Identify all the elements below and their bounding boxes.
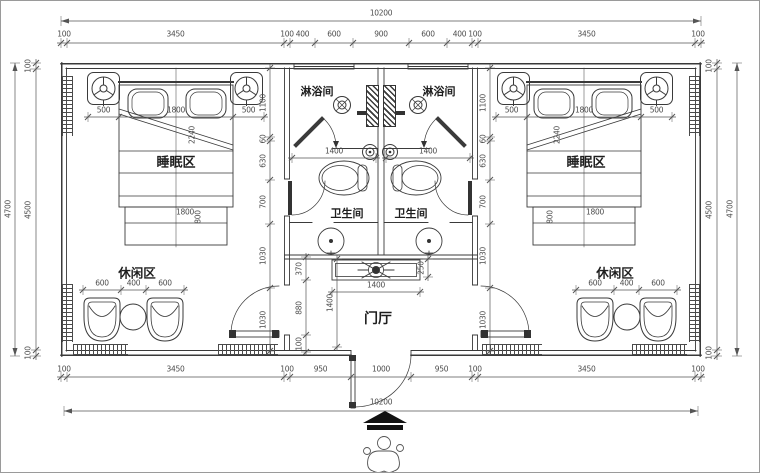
dim-label: 1400: [419, 147, 437, 156]
dim-label: 3450: [578, 30, 596, 39]
room-label-sleep-left: 睡眠区: [156, 152, 195, 171]
dim-label: 400: [127, 279, 140, 288]
dim-label: 3450: [167, 365, 185, 374]
dim-label: 100: [24, 346, 33, 359]
dim-label: 100: [468, 365, 481, 374]
dim-label: 1400: [325, 147, 343, 156]
dim-label: 500: [505, 106, 518, 115]
dim-label: 100: [691, 365, 704, 374]
dim-label: 400: [620, 279, 633, 288]
room-label-shower-left: 淋浴间: [301, 83, 334, 99]
floor-plan-canvas: 睡眠区 睡眠区 淋浴间 淋浴间 卫生间 卫生间 门厅 休闲区 休闲区 10034…: [0, 0, 760, 473]
dim-label: 1800: [167, 106, 185, 115]
dim-label: 1800: [586, 208, 604, 217]
dim-label: 1030: [479, 311, 488, 329]
dim-label: 1030: [259, 311, 268, 329]
dim-label: 60: [479, 135, 488, 144]
dim-label: 1800: [575, 106, 593, 115]
labels-layer: 睡眠区 睡眠区 淋浴间 淋浴间 卫生间 卫生间 门厅 休闲区 休闲区 10034…: [1, 1, 759, 472]
room-label-wc-right: 卫生间: [395, 205, 428, 221]
dim-label: 600: [327, 30, 340, 39]
dim-label: 700: [259, 195, 268, 208]
dim-label: 100: [57, 30, 70, 39]
dim-label: 4700: [726, 200, 735, 218]
dim-label: 600: [651, 279, 664, 288]
dim-label: 900: [374, 30, 387, 39]
room-label-sleep-right: 睡眠区: [566, 152, 605, 171]
room-label-wc-left: 卫生间: [331, 205, 364, 221]
dim-label: 1100: [479, 94, 488, 112]
dim-label: 1400: [367, 281, 385, 290]
dim-label: 1000: [372, 365, 390, 374]
dim-label: 370: [295, 262, 304, 275]
dim-label: 250: [417, 261, 426, 274]
dim-label: 10200: [370, 9, 392, 18]
dim-label: 1800: [176, 208, 194, 217]
dim-label: 4500: [24, 201, 33, 219]
dim-label: 1030: [259, 247, 268, 265]
dim-label: 100: [57, 365, 70, 374]
room-label-hall: 门厅: [364, 308, 392, 328]
dim-label: 880: [295, 301, 304, 314]
dim-label: 3450: [167, 30, 185, 39]
dim-label: 630: [259, 154, 268, 167]
dim-label: 100: [705, 59, 714, 72]
dim-label: 1400: [326, 294, 335, 312]
dim-label: 500: [650, 106, 663, 115]
dim-label: 10200: [370, 398, 392, 407]
dim-label: 800: [546, 210, 555, 223]
dim-label: 100: [280, 30, 293, 39]
dim-label: 100: [280, 365, 293, 374]
dim-label: 1100: [259, 94, 268, 112]
dim-label: 100: [295, 337, 304, 350]
dim-label: 60: [259, 135, 268, 144]
dim-label: 4700: [4, 200, 13, 218]
dim-label: 100: [691, 30, 704, 39]
dim-label: 4500: [705, 201, 714, 219]
dim-label: 630: [479, 154, 488, 167]
dim-label: 950: [435, 365, 448, 374]
dim-label: 800: [194, 210, 203, 223]
dim-label: 400: [453, 30, 466, 39]
dim-label: 500: [242, 106, 255, 115]
dim-label: 600: [421, 30, 434, 39]
dim-label: 2240: [188, 126, 197, 144]
dim-label: 600: [588, 279, 601, 288]
room-label-shower-right: 淋浴间: [423, 83, 456, 99]
dim-label: 3450: [578, 365, 596, 374]
dim-label: 700: [479, 195, 488, 208]
dim-label: 1030: [479, 247, 488, 265]
dim-label: 600: [95, 279, 108, 288]
dim-label: 100: [705, 346, 714, 359]
dim-label: 950: [314, 365, 327, 374]
dim-label: 400: [296, 30, 309, 39]
dim-label: 2240: [553, 126, 562, 144]
dim-label: 600: [158, 279, 171, 288]
dim-label: 500: [97, 106, 110, 115]
dim-label: 100: [24, 59, 33, 72]
dim-label: 100: [468, 30, 481, 39]
